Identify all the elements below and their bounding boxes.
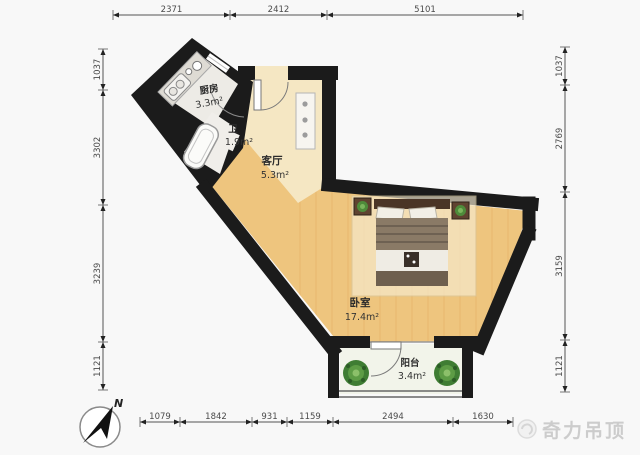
balcony-area: 3.4m² [398,371,426,382]
bedroom-name: 卧室 [350,296,371,309]
bath-area: 1.9m² [225,137,253,148]
dim-label: 2412 [268,5,290,15]
plant-left [343,360,369,386]
entrance-door-leaf [254,80,261,110]
accent-dot [407,255,410,258]
dim-label: 1121 [93,355,103,377]
dim-label: 1842 [205,412,227,422]
dim-label: 1037 [555,55,565,77]
watermark-text: 奇力吊顶 [542,419,626,442]
plant-left-small-center [360,204,365,209]
dim-label: 3159 [555,255,565,277]
bed [352,196,476,296]
balcony-name: 阳台 [400,357,420,369]
bedroom-area: 17.4m² [345,312,379,323]
dim-label: 3302 [93,137,103,159]
dim-label: 1121 [555,355,565,377]
dim-label: 5101 [414,5,436,15]
accent-dot [413,261,416,264]
bath-name: 卫 [228,124,238,135]
dim-label: 2494 [382,412,404,422]
dim-label: 1079 [149,412,171,422]
dim-label: 931 [261,412,277,422]
plant-right [434,360,460,386]
living-name: 客厅 [261,154,283,167]
bed-foot-strip [376,271,448,286]
dim-label: 1630 [472,412,494,422]
dim-label: 1159 [299,412,321,422]
dim-label: 3239 [93,263,103,285]
balcony-door-leaf [371,342,401,349]
shoe-cabinet [296,93,315,149]
dim-label: 1037 [93,59,103,81]
plant-right-small-center [458,208,463,213]
dim-label: 2371 [161,5,183,15]
watermark-logo-icon [518,420,536,438]
living-area: 5.3m² [261,170,289,181]
bed-accent-square [404,252,419,267]
living-right-wall [322,76,336,190]
entrance-gap [255,66,288,80]
compass-north-label: N [114,397,123,410]
floor-plan-image: 2371241251011079184293111592494163010373… [0,0,640,455]
dim-label: 2769 [555,128,565,150]
